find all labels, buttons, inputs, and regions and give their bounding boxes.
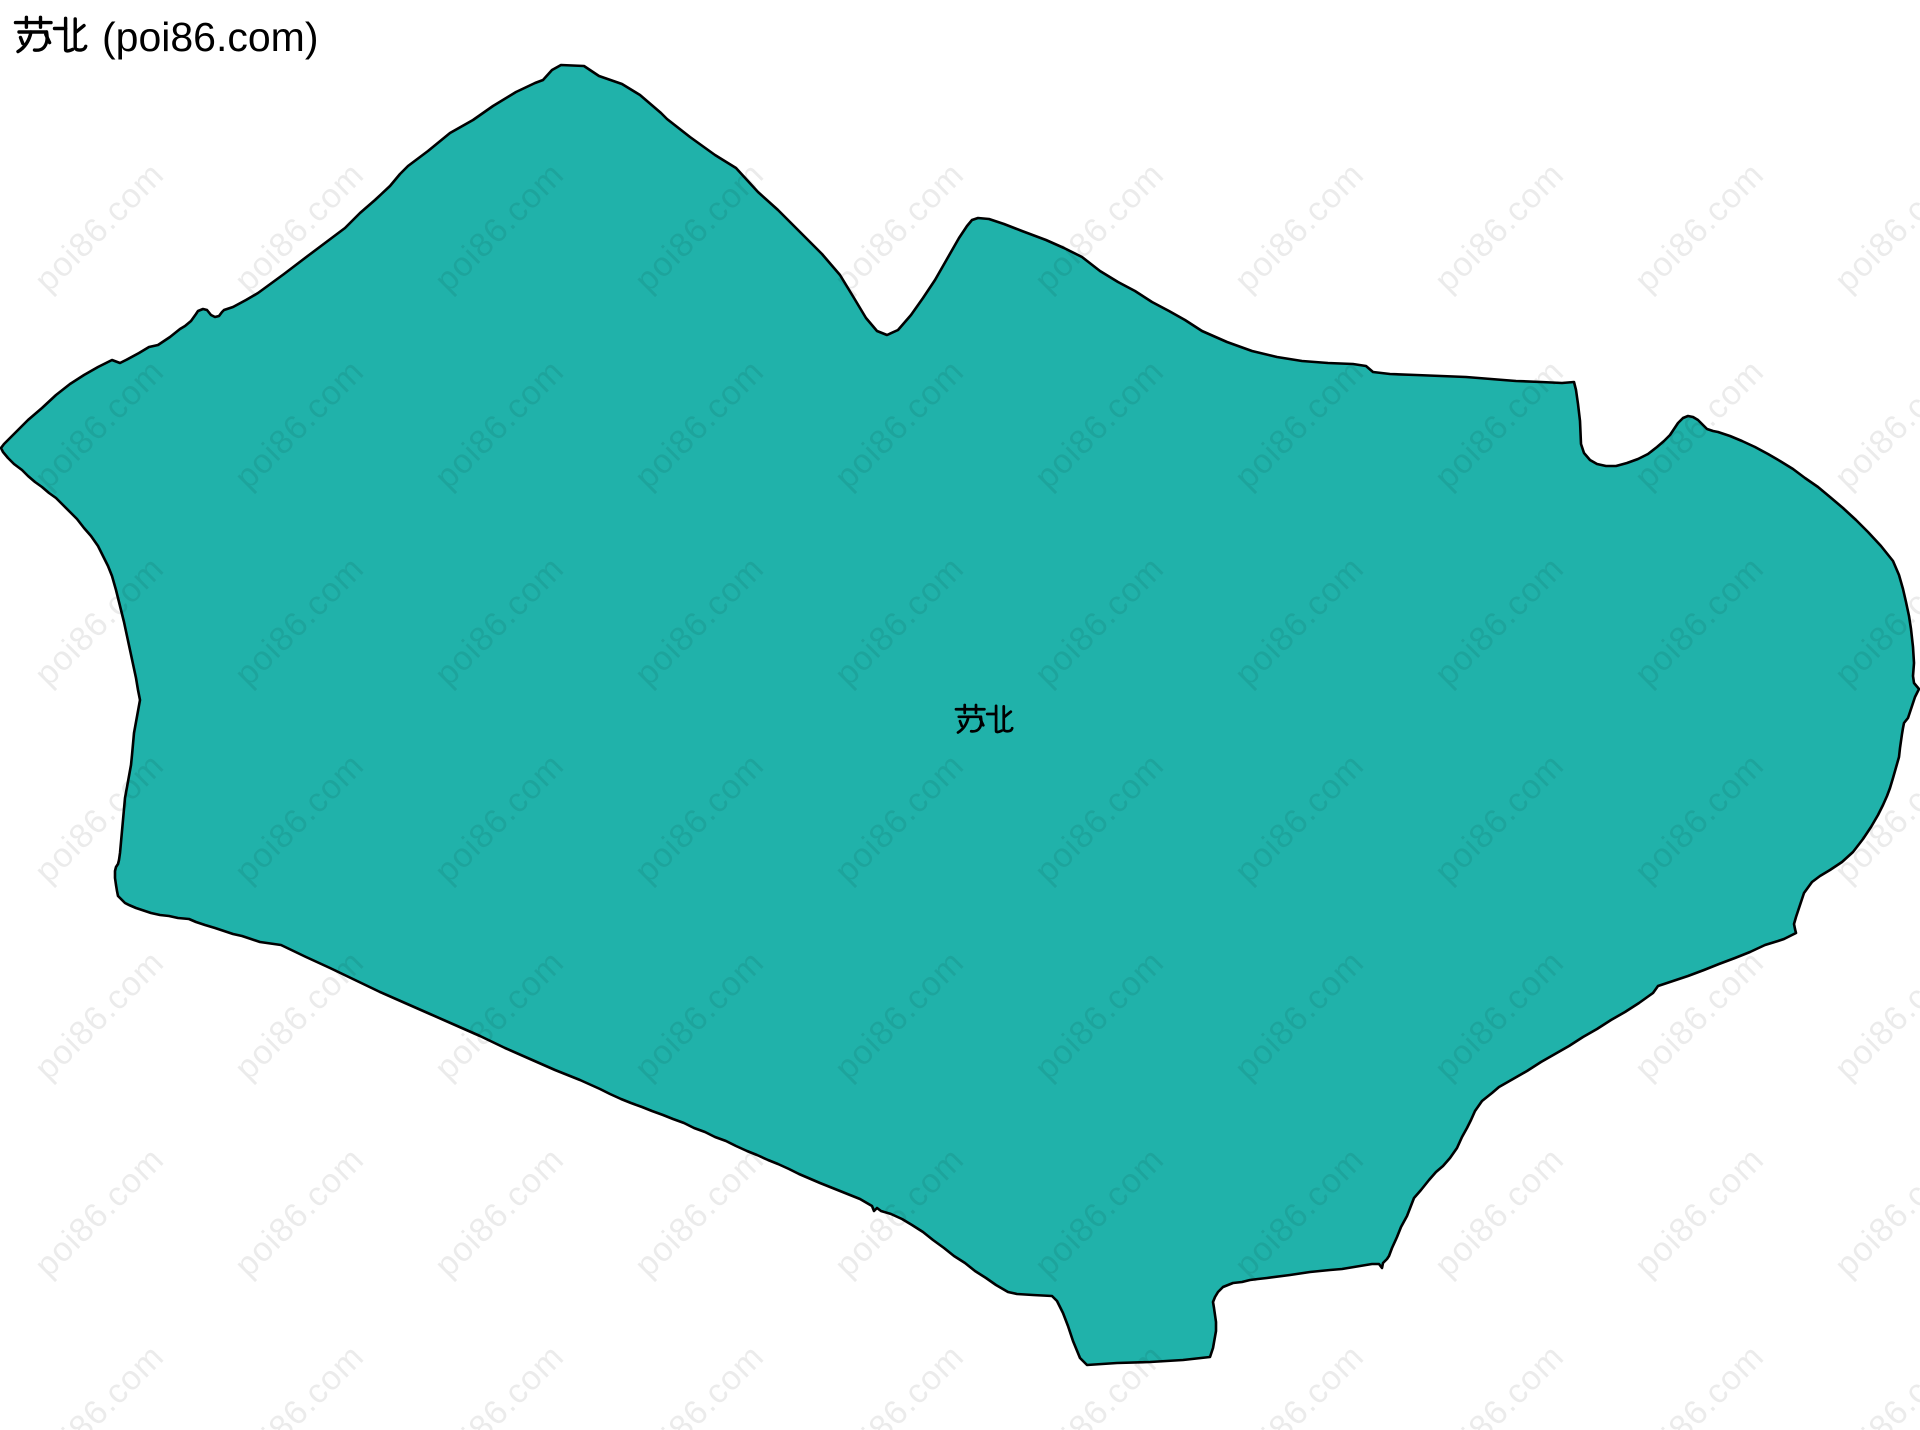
svg-text:poi86.com: poi86.com — [1627, 1337, 1771, 1430]
svg-text:poi86.com: poi86.com — [627, 1140, 771, 1284]
svg-text:poi86.com: poi86.com — [427, 1337, 571, 1430]
svg-text:poi86.com: poi86.com — [1427, 155, 1571, 299]
svg-text:poi86.com: poi86.com — [27, 1337, 171, 1430]
svg-text:poi86.com: poi86.com — [227, 1140, 371, 1284]
svg-text:poi86.com: poi86.com — [27, 155, 171, 299]
svg-text:poi86.com: poi86.com — [1427, 1140, 1571, 1284]
svg-text:poi86.com: poi86.com — [1827, 943, 1920, 1087]
svg-text:poi86.com: poi86.com — [1827, 1140, 1920, 1284]
svg-text:poi86.com: poi86.com — [1227, 155, 1371, 299]
svg-text:poi86.com: poi86.com — [1627, 155, 1771, 299]
svg-text:poi86.com: poi86.com — [827, 1337, 971, 1430]
svg-text:poi86.com: poi86.com — [27, 943, 171, 1087]
svg-text:(poi86.com): (poi86.com) — [102, 14, 318, 60]
svg-text:poi86.com: poi86.com — [27, 1140, 171, 1284]
svg-text:poi86.com: poi86.com — [1827, 155, 1920, 299]
svg-text:poi86.com: poi86.com — [227, 1337, 371, 1430]
svg-text:poi86.com: poi86.com — [1627, 1140, 1771, 1284]
svg-text:poi86.com: poi86.com — [627, 1337, 771, 1430]
svg-text:poi86.com: poi86.com — [1827, 1337, 1920, 1430]
svg-text:poi86.com: poi86.com — [1227, 1337, 1371, 1430]
svg-text:poi86.com: poi86.com — [1427, 1337, 1571, 1430]
svg-text:poi86.com: poi86.com — [1827, 352, 1920, 496]
svg-text:poi86.com: poi86.com — [427, 1140, 571, 1284]
svg-text:poi86.com: poi86.com — [227, 943, 371, 1087]
